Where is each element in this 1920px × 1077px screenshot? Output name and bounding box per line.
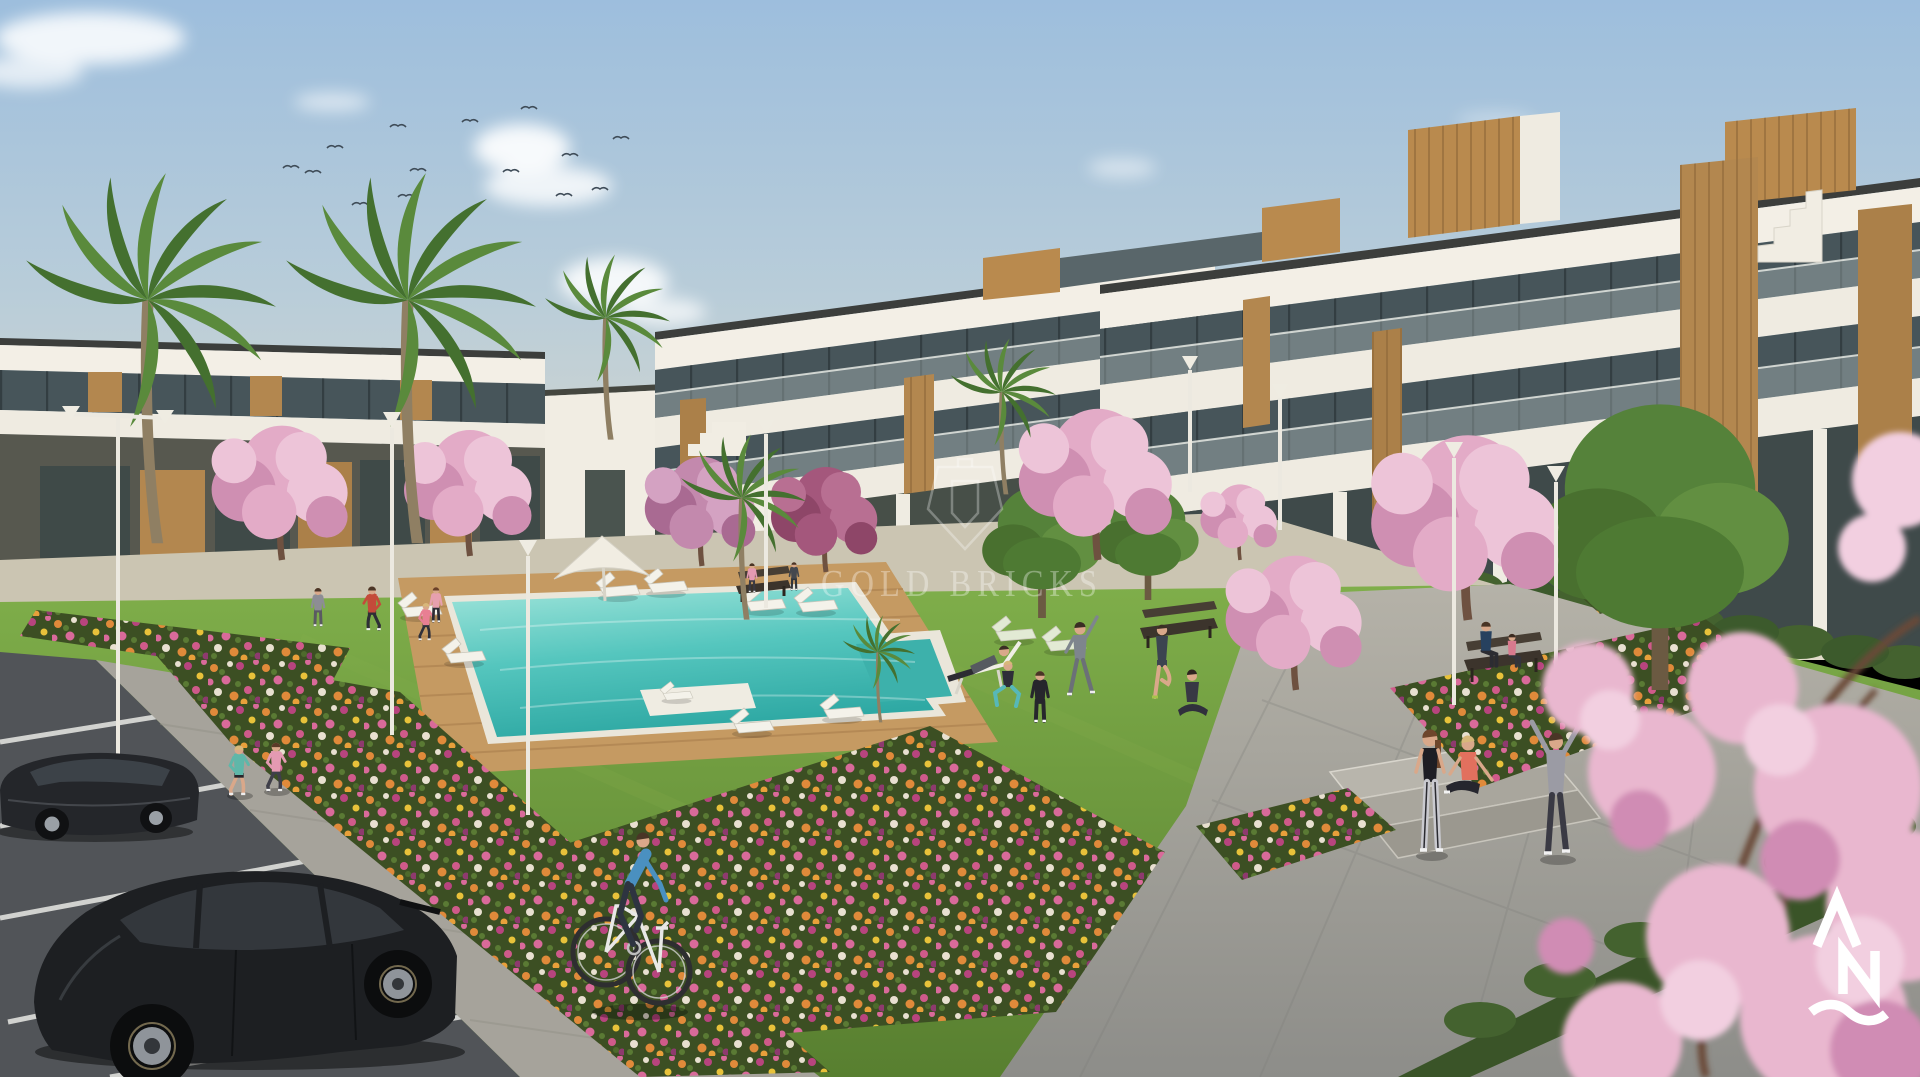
rooftop-wood-box [1262,198,1340,262]
car-sedan [0,753,199,842]
watermark-text: GOLD BRICKS [821,563,1103,605]
render-image: GOLD BRICKS [0,0,1920,1077]
